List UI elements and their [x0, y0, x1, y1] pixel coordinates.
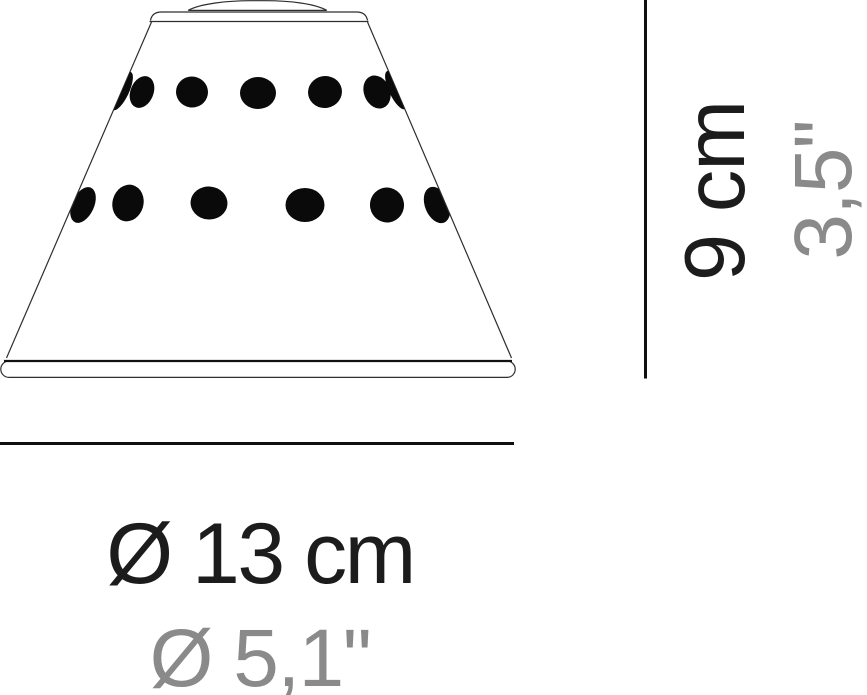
- hole: [367, 185, 407, 225]
- hole: [240, 77, 276, 109]
- diameter-metric-label: Ø 13 cm: [0, 504, 520, 604]
- top-rim: [150, 12, 369, 22]
- top-cap-dome: [188, 1, 327, 11]
- dimension-drawing-canvas: 9 cm 3,5" Ø 13 cm Ø 5,1": [0, 0, 867, 695]
- perforation-holes: [65, 68, 455, 227]
- hole: [189, 185, 229, 221]
- hole-bottom-edge-right: [419, 183, 455, 227]
- height-imperial-label: 3,5": [781, 40, 867, 340]
- height-metric-label: 9 cm: [670, 41, 760, 341]
- hole-bottom-edge-left: [65, 183, 101, 227]
- hole: [174, 74, 211, 110]
- hole: [286, 188, 325, 222]
- hole: [108, 181, 148, 225]
- diameter-imperial-label: Ø 5,1": [0, 611, 520, 695]
- hole: [305, 73, 344, 110]
- bottom-rim: [1, 361, 515, 377]
